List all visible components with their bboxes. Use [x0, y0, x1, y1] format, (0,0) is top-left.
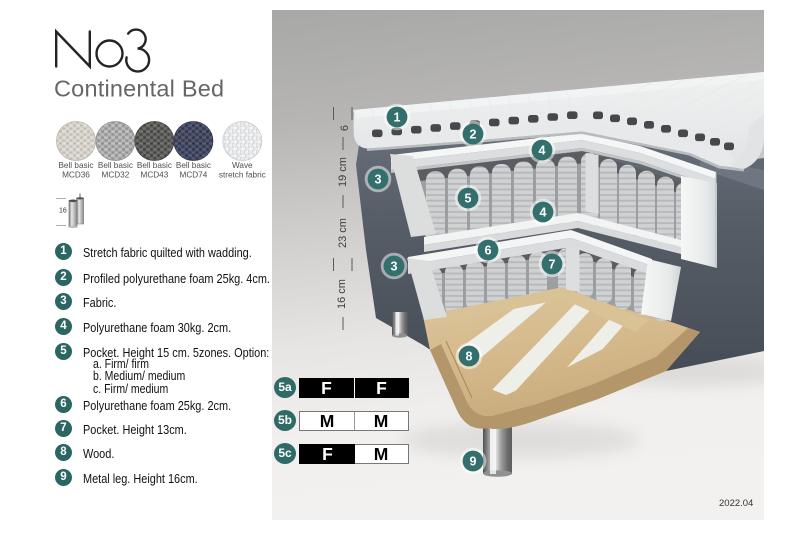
- svg-text:3: 3: [375, 173, 382, 187]
- svg-text:4: 4: [540, 206, 547, 220]
- svg-text:8: 8: [466, 350, 473, 364]
- svg-text:Continental Bed: Continental Bed: [54, 76, 224, 102]
- svg-text:19 cm: 19 cm: [337, 157, 349, 187]
- svg-text:16: 16: [59, 208, 67, 215]
- svg-text:Wave: Wave: [232, 161, 253, 170]
- svg-text:MCD32: MCD32: [102, 171, 130, 180]
- svg-text:Bell basic: Bell basic: [98, 161, 133, 170]
- svg-text:1: 1: [394, 111, 401, 125]
- svg-text:2022.04: 2022.04: [719, 498, 753, 509]
- svg-text:stretch fabric: stretch fabric: [219, 171, 266, 180]
- svg-text:Bell basic: Bell basic: [58, 161, 93, 170]
- svg-text:7: 7: [549, 258, 556, 272]
- svg-text:Bell basic: Bell basic: [137, 161, 172, 170]
- svg-text:6: 6: [485, 244, 492, 258]
- svg-text:4: 4: [539, 144, 546, 158]
- svg-text:23 cm: 23 cm: [337, 218, 349, 248]
- svg-text:5: 5: [465, 192, 472, 206]
- svg-text:3: 3: [391, 260, 398, 274]
- svg-text:6: 6: [339, 125, 351, 131]
- svg-text:Bell basic: Bell basic: [176, 161, 211, 170]
- svg-text:2: 2: [470, 128, 477, 142]
- svg-text:MCD74: MCD74: [180, 171, 208, 180]
- svg-text:9: 9: [470, 455, 477, 469]
- svg-text:16 cm: 16 cm: [336, 279, 348, 309]
- svg-text:MCD36: MCD36: [62, 171, 90, 180]
- svg-text:MCD43: MCD43: [141, 171, 169, 180]
